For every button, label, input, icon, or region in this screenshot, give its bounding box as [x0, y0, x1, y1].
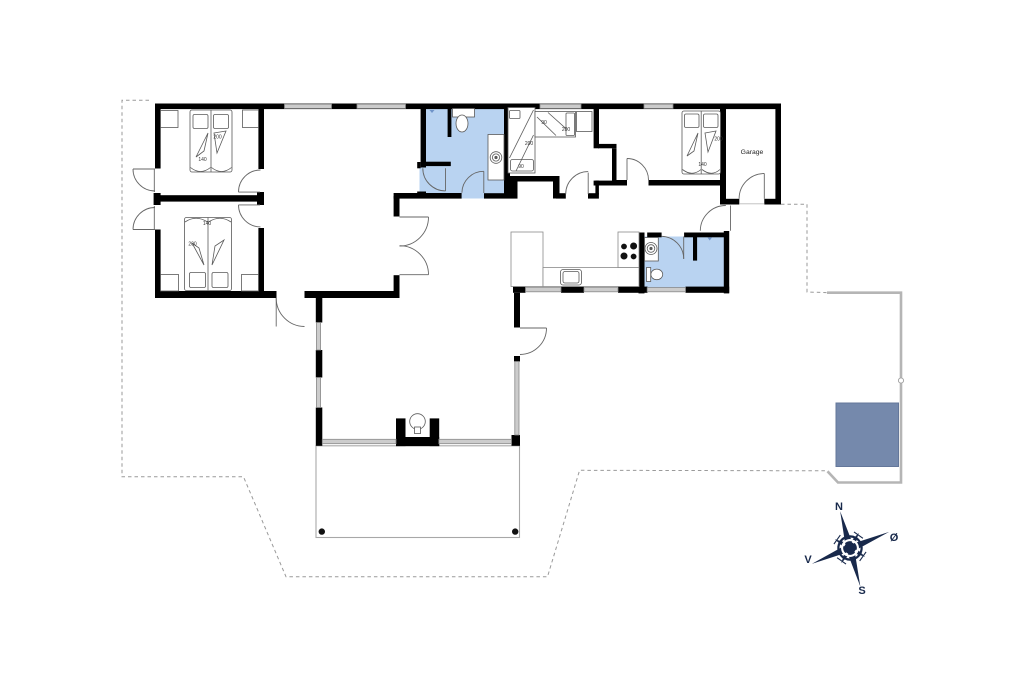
svg-text:200: 200 — [525, 141, 534, 147]
svg-text:V: V — [804, 554, 812, 566]
svg-text:140: 140 — [698, 162, 707, 168]
svg-text:200: 200 — [188, 242, 197, 248]
svg-text:Ø: Ø — [890, 532, 899, 544]
svg-text:90: 90 — [541, 120, 547, 126]
svg-text:200: 200 — [562, 127, 571, 133]
svg-text:200: 200 — [213, 135, 222, 141]
svg-text:90: 90 — [518, 164, 524, 170]
svg-text:S: S — [858, 585, 865, 597]
svg-text:N: N — [835, 501, 843, 513]
svg-text:140: 140 — [198, 157, 207, 163]
svg-text:200: 200 — [714, 137, 723, 143]
svg-text:Garage: Garage — [741, 149, 764, 156]
svg-text:140: 140 — [203, 221, 212, 227]
